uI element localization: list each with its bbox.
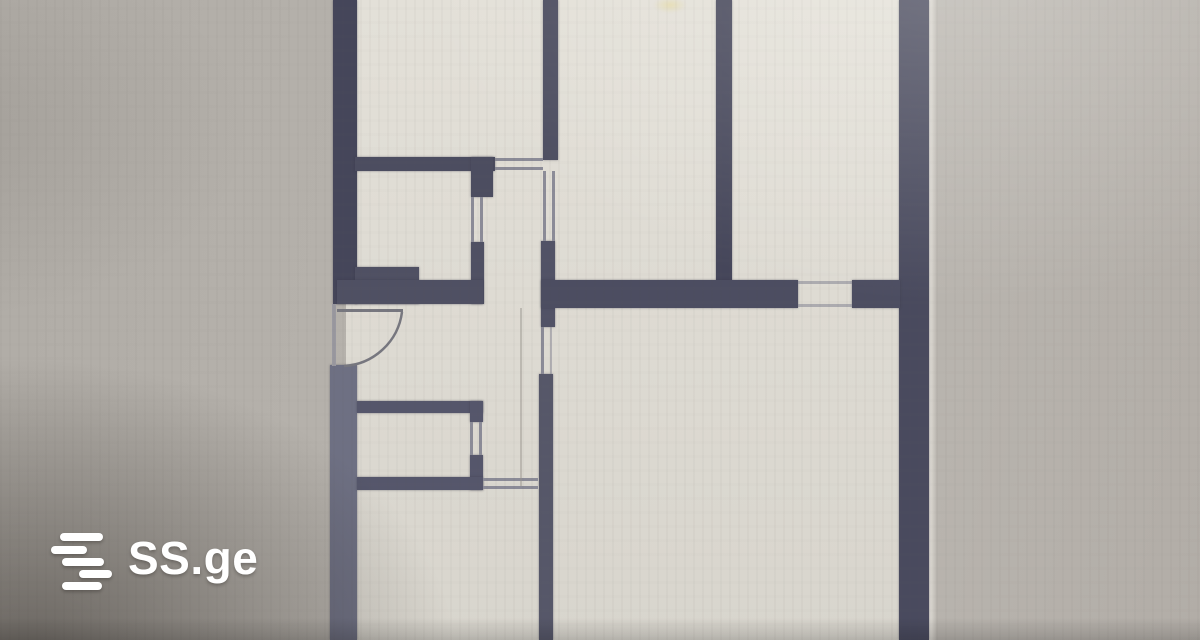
wall-segment — [470, 401, 483, 422]
photo-glare-artifact — [653, 0, 687, 13]
ssge-brand-text: SS.ge — [128, 531, 258, 585]
wall-segment — [716, 0, 732, 283]
opening-line — [798, 304, 852, 307]
ssge-logo-bar — [60, 533, 103, 541]
opening-line — [541, 327, 544, 374]
opening-line — [483, 478, 538, 481]
opening-line — [550, 327, 552, 374]
opening-line — [470, 422, 473, 455]
wall-segment — [357, 477, 483, 490]
opening-line — [480, 197, 483, 242]
wall-segment — [333, 0, 357, 304]
opening-line — [543, 171, 546, 241]
ssge-logo-bar — [51, 546, 87, 554]
opening-line — [479, 422, 482, 455]
opening-line — [337, 309, 403, 312]
opening-line — [495, 158, 543, 161]
ssge-logo-bar — [79, 570, 112, 578]
ssge-logo-bar — [62, 558, 104, 566]
wall-segment — [330, 365, 357, 640]
opening-line — [332, 304, 336, 366]
wall-segment — [471, 157, 493, 197]
wall-segment — [852, 280, 900, 308]
opening-line — [520, 308, 522, 486]
ssge-logo-bar — [62, 582, 102, 590]
wall-segment — [543, 0, 558, 160]
wall-segment — [357, 401, 483, 413]
plan-paper — [346, 0, 910, 640]
wall-segment — [539, 374, 553, 640]
opening-line — [495, 167, 543, 170]
wall-segment — [541, 280, 798, 308]
opening-line — [552, 171, 555, 241]
paper-edge-highlight — [929, 0, 937, 640]
floor-plan-photo: SS.ge — [0, 0, 1200, 640]
opening-line — [798, 281, 852, 284]
wall-segment — [337, 280, 483, 304]
wall-segment — [899, 0, 929, 640]
opening-line — [483, 486, 538, 489]
opening-line — [471, 197, 474, 242]
